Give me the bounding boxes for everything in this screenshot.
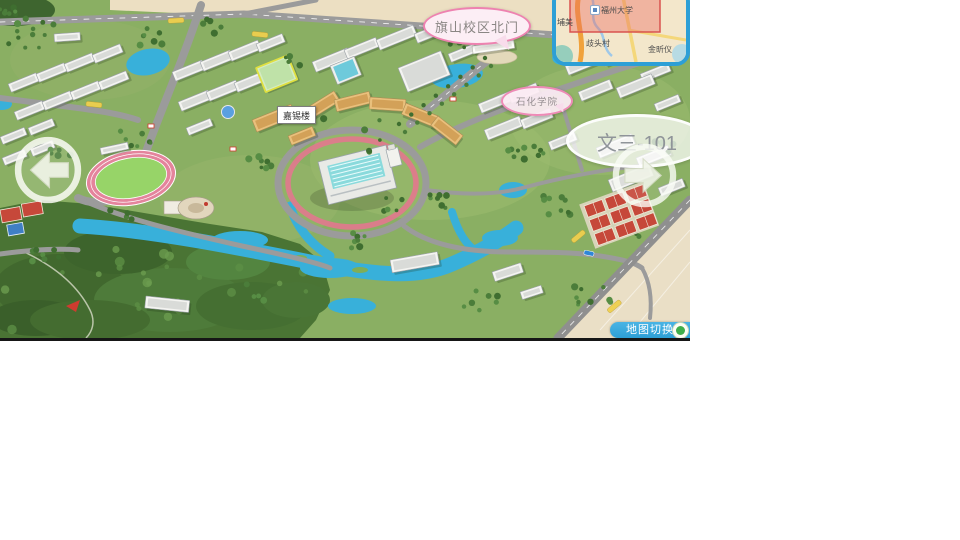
pan-right-button[interactable] xyxy=(611,142,678,209)
page: 旗山校区北门 石化学院 文三-101 嘉锡楼 xyxy=(0,0,960,540)
building-name-tag[interactable]: 嘉锡楼 xyxy=(277,106,316,124)
globe-toggle-icon xyxy=(672,322,689,339)
minimap[interactable]: 埔美 福州大学 歧头村 金昕仪 xyxy=(552,0,690,66)
minimap-place-south: 歧头村 xyxy=(586,39,610,48)
pan-left-button[interactable] xyxy=(13,135,83,205)
map-switch-label: 地图切换 xyxy=(626,322,674,338)
arrow-left-icon xyxy=(13,135,83,205)
map-switch-button[interactable]: 地图切换 xyxy=(610,322,690,338)
minimap-place-west: 埔美 xyxy=(557,18,573,27)
dome-pavilion xyxy=(222,106,235,119)
minimap-university-label: 福州大学 xyxy=(590,5,633,15)
university-marker-icon xyxy=(590,5,600,15)
arrow-right-icon xyxy=(611,142,678,209)
minimap-place-east: 金昕仪 xyxy=(648,45,672,54)
minimap-university-text: 福州大学 xyxy=(601,6,633,15)
north-gate-bubble[interactable]: 旗山校区北门 xyxy=(423,7,531,45)
campus-map-viewport[interactable]: 旗山校区北门 石化学院 文三-101 嘉锡楼 xyxy=(0,0,690,341)
